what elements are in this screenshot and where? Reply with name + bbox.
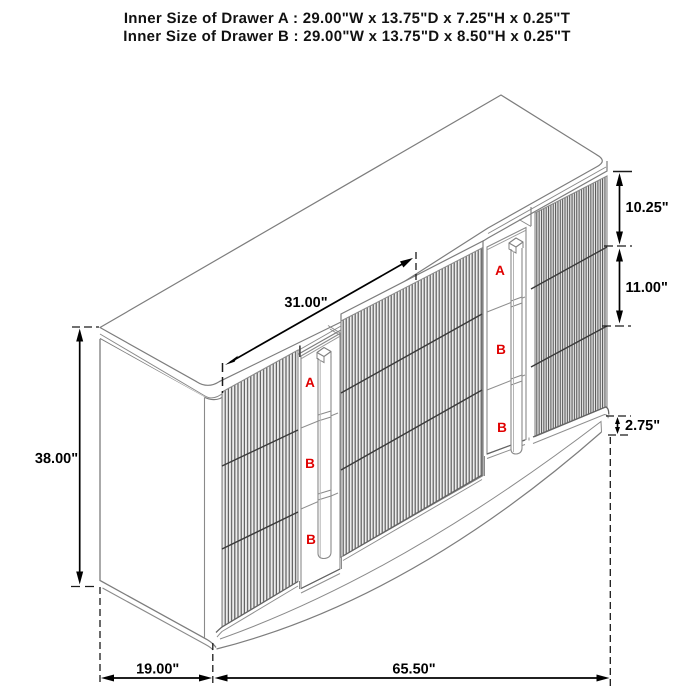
svg-text:19.00": 19.00" <box>136 662 179 678</box>
svg-text:65.50": 65.50" <box>392 662 435 678</box>
svg-text:B: B <box>306 532 316 547</box>
svg-text:11.00": 11.00" <box>626 280 668 296</box>
svg-text:B: B <box>305 456 315 471</box>
svg-text:Inner Size of Drawer B : 29.00: Inner Size of Drawer B : 29.00"W x 13.75… <box>123 28 570 45</box>
svg-text:38.00": 38.00" <box>35 451 78 467</box>
svg-text:31.00": 31.00" <box>284 295 327 311</box>
svg-text:A: A <box>495 263 505 278</box>
svg-text:Inner Size of Drawer A : 29.00: Inner Size of Drawer A : 29.00"W x 13.75… <box>124 10 570 27</box>
svg-text:2.75": 2.75" <box>625 418 660 434</box>
svg-text:A: A <box>305 375 315 390</box>
svg-text:B: B <box>497 420 507 435</box>
svg-text:10.25": 10.25" <box>626 200 669 216</box>
svg-text:B: B <box>496 342 506 357</box>
